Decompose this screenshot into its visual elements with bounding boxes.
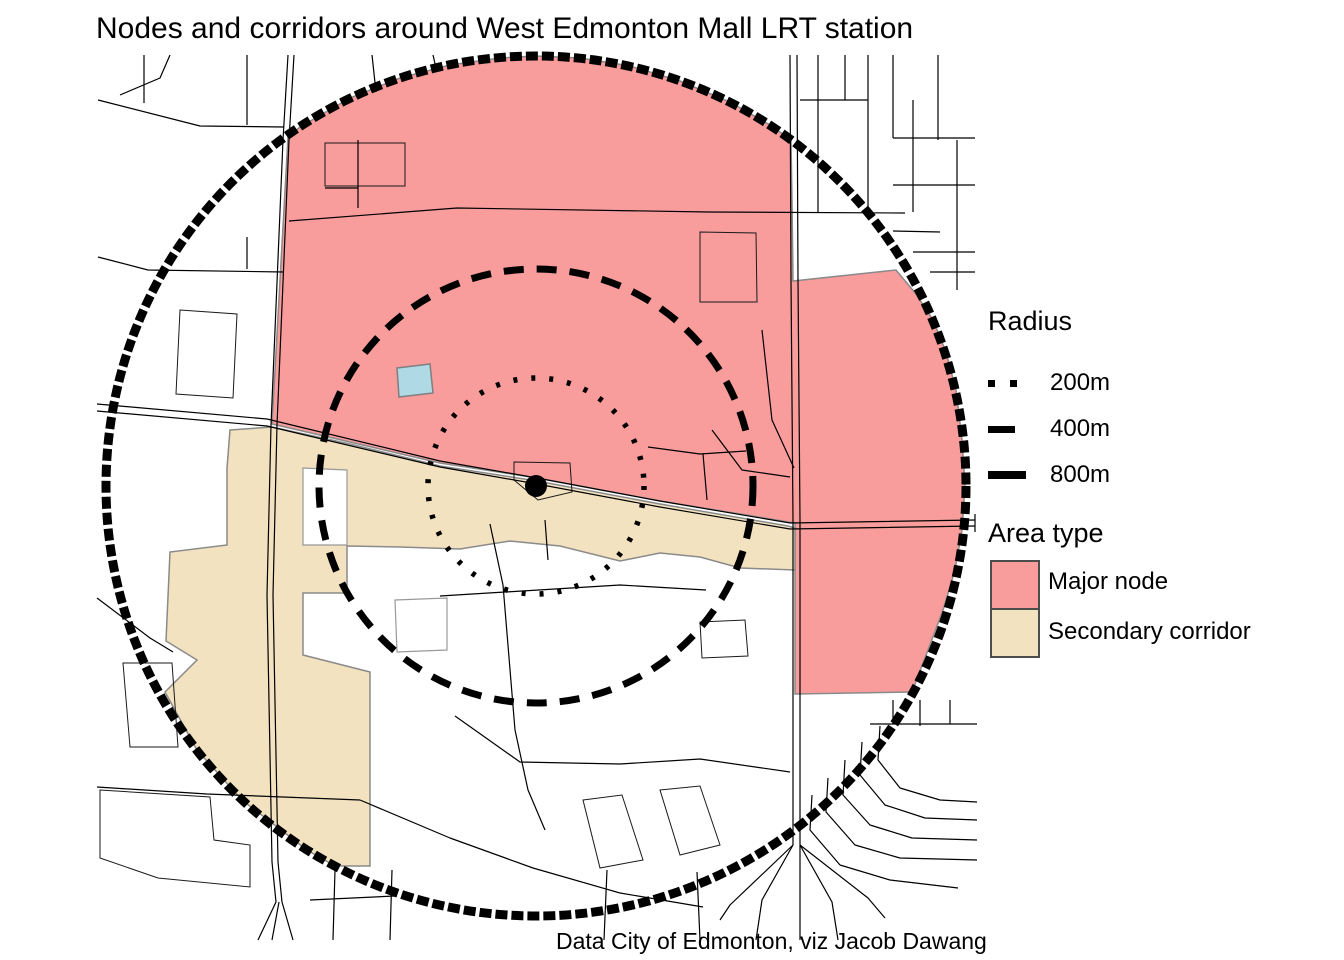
road-line <box>893 231 940 232</box>
road-line <box>860 742 977 820</box>
road-line <box>440 585 706 596</box>
road-line <box>360 800 703 907</box>
road-line <box>333 870 335 940</box>
secondary-corridor-swatch <box>990 608 1040 658</box>
dotted-line-sample <box>988 380 1034 387</box>
road-line <box>810 795 958 888</box>
road-line <box>800 845 885 918</box>
legend-item-label: 400m <box>1050 415 1110 443</box>
parcel-outline <box>176 310 237 398</box>
radius-legend-title: Radius <box>988 306 1072 337</box>
legend-item-label: 200m <box>1050 369 1110 397</box>
road-line <box>120 55 170 95</box>
legend-item-400m: 400m <box>988 414 1110 444</box>
major-node-swatch <box>990 560 1040 610</box>
lrt-station-dot <box>525 475 547 497</box>
parcel-outline <box>583 795 643 868</box>
map-caption: Data City of Edmonton, viz Jacob Dawang <box>556 928 987 955</box>
pond <box>397 364 433 397</box>
road-line <box>98 100 284 127</box>
parcel-outline <box>660 786 720 855</box>
area-type-legend-title: Area type <box>988 518 1104 549</box>
road-line <box>455 716 790 772</box>
road-line <box>756 845 793 940</box>
road-line <box>310 896 395 900</box>
map-figure: Nodes and corridors around West Edmonton… <box>0 0 1344 960</box>
legend-item-label: Secondary corridor <box>1048 618 1251 646</box>
map-canvas <box>0 0 1344 960</box>
road-line <box>878 726 977 802</box>
road-line <box>390 870 392 940</box>
road-line <box>98 257 284 272</box>
parcel-outline <box>100 790 250 887</box>
road-line <box>490 524 545 830</box>
area-hole <box>395 598 447 652</box>
solid-line-sample <box>988 471 1034 479</box>
legend-item-800m: 800m <box>988 460 1110 490</box>
road-line <box>720 845 793 920</box>
legend-item-200m: 200m <box>988 368 1110 398</box>
page-title: Nodes and corridors around West Edmonton… <box>96 12 913 46</box>
parcel-outline <box>700 620 748 658</box>
legend-item-label: Major node <box>1048 568 1168 596</box>
legend-item-label: 800m <box>1050 461 1110 489</box>
major-node-area <box>272 56 965 694</box>
dashed-line-sample <box>988 426 1034 433</box>
